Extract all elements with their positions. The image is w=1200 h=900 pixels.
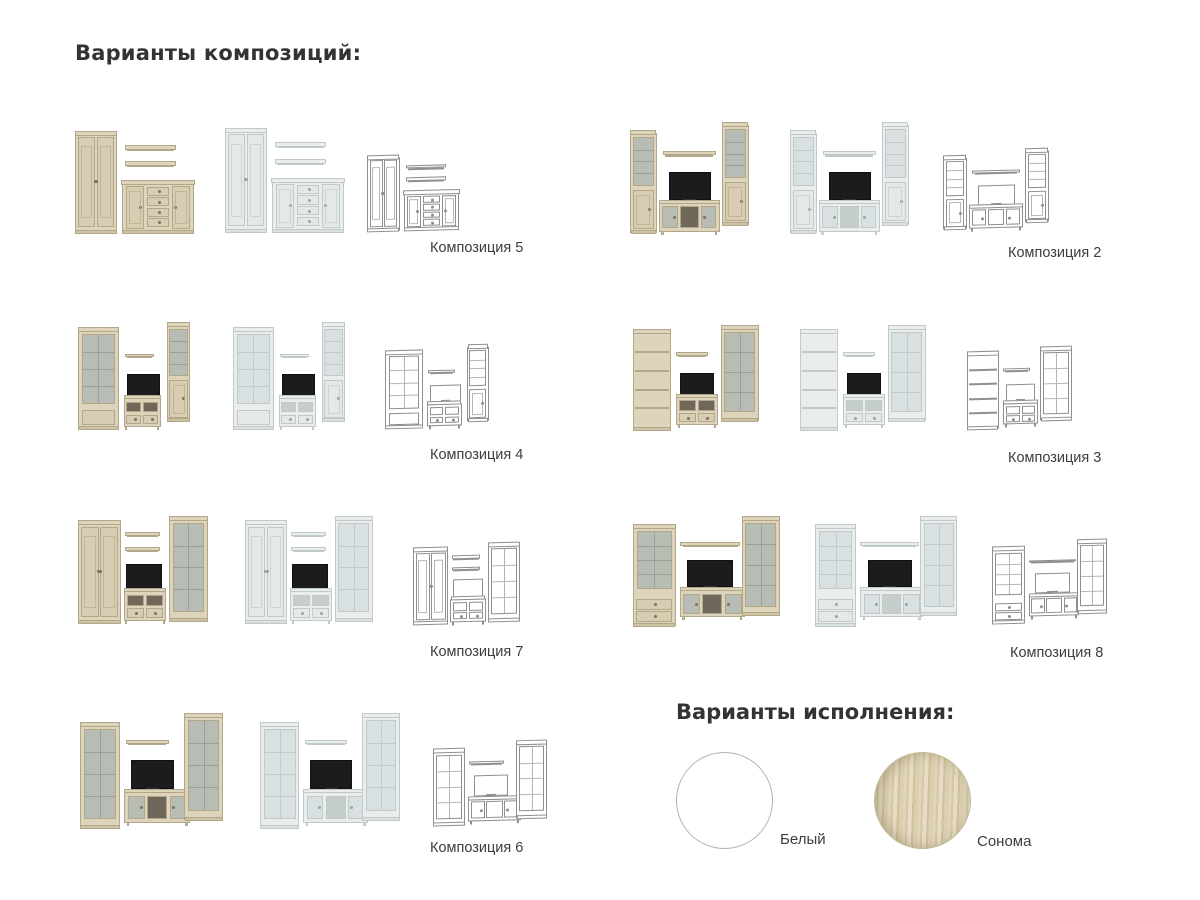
composition-2-render-white <box>790 123 911 235</box>
composition-5-render-wireframe <box>367 149 472 234</box>
composition-6-render-sonoma <box>80 715 223 830</box>
finish-label-white: Белый <box>780 831 826 848</box>
composition-2-render-sonoma <box>630 123 751 235</box>
finish-swatch-sonoma <box>874 752 971 849</box>
composition-label: Композиция 8 <box>1010 645 1103 661</box>
finish-label-sonoma: Сонома <box>977 833 1031 850</box>
composition-cell-4: Композиция 4 <box>78 323 508 460</box>
composition-3-render-wireframe <box>967 349 1073 432</box>
composition-6-render-wireframe <box>433 742 547 828</box>
finish-swatch-white <box>676 752 773 849</box>
composition-7-render-sonoma <box>78 518 208 625</box>
composition-5-render-sonoma <box>75 125 210 235</box>
composition-cell-7: Композиция 7 <box>78 515 520 657</box>
composition-8-render-sonoma <box>633 518 780 626</box>
finishes-section: Варианты исполнения: Белый Сонома <box>676 700 1136 870</box>
composition-3-render-white <box>800 328 927 432</box>
composition-label: Композиция 6 <box>430 840 523 856</box>
composition-5-render-white <box>225 122 360 234</box>
composition-cell-6: Композиция 6 <box>80 712 547 860</box>
composition-label: Композиция 4 <box>430 447 523 463</box>
composition-6-render-white <box>260 715 400 830</box>
composition-label: Композиция 2 <box>1008 245 1101 261</box>
composition-4-render-white <box>233 325 350 431</box>
composition-label: Композиция 3 <box>1008 450 1101 466</box>
composition-cell-3: Композиция 3 <box>633 323 1086 461</box>
composition-cell-2: Композиция 2 <box>630 118 1086 264</box>
composition-7-render-wireframe <box>413 544 520 627</box>
page-title: Варианты композиций: <box>75 41 361 65</box>
composition-4-render-wireframe <box>385 347 493 431</box>
composition-8-render-wireframe <box>992 540 1107 623</box>
composition-4-render-sonoma <box>78 325 195 431</box>
composition-2-render-wireframe <box>943 149 1051 232</box>
composition-8-render-white <box>815 518 957 626</box>
composition-cell-8: Композиция 8 <box>633 515 1110 657</box>
finishes-title: Варианты исполнения: <box>676 700 954 724</box>
composition-label: Композиция 7 <box>430 644 523 660</box>
composition-label: Композиция 5 <box>430 240 523 256</box>
composition-7-render-white <box>245 518 373 625</box>
composition-3-render-sonoma <box>633 328 760 432</box>
composition-cell-5: Композиция 5 <box>75 120 508 265</box>
